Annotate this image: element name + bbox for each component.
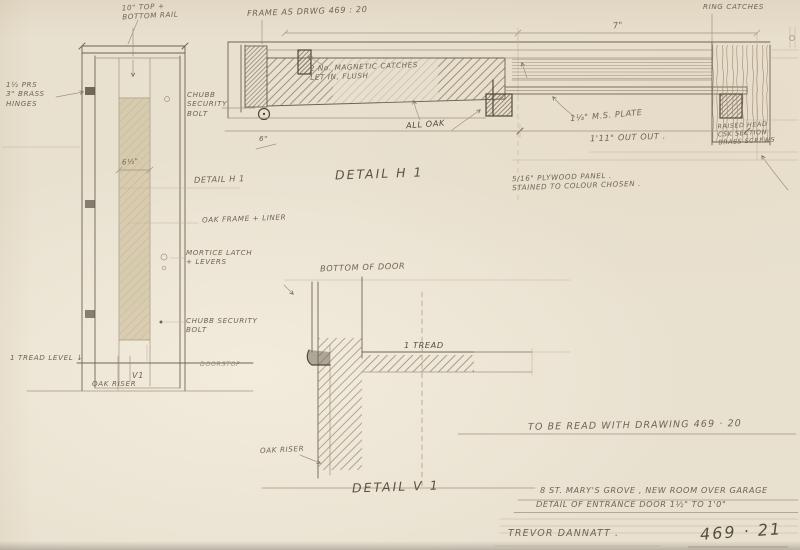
mortice-note: MORTICE LATCH + LEVERS	[186, 248, 252, 267]
detail-v1-title: DETAIL V 1	[352, 477, 440, 496]
bolt-dim: 6"	[259, 134, 268, 143]
door-elevation	[2, 20, 253, 391]
magnetic-catches-note: 2 No. MAGNETIC CATCHES LET IN, FLUSH	[310, 60, 419, 82]
detail-v1-section	[262, 277, 570, 490]
drawing-subject: DETAIL OF ENTRANCE DOOR 1½" TO 1'0"	[536, 499, 726, 510]
ring-catches-note: RING CATCHES	[703, 2, 764, 11]
oak-riser-note-elev: OAK RISER	[92, 379, 136, 388]
screws-note: RAISED HEAD CSK SECTION BRASS SCREWS	[717, 121, 775, 148]
panel-width-dim: 6½"	[122, 156, 139, 166]
paper-edge-shadow	[0, 541, 800, 550]
detail-h1-title: DETAIL H 1	[335, 164, 424, 183]
detail-h1-ref: DETAIL H 1	[194, 173, 245, 185]
chubb-bolt-note-elev: CHUBB SECURITY BOLT	[186, 316, 258, 335]
architect-name: TREVOR DANNATT .	[508, 528, 619, 540]
detail-h1-section	[222, 14, 798, 200]
tread-level-note: 1 TREAD LEVEL ↓	[10, 353, 83, 362]
hinges-note: 1½ PRS 3" BRASS HINGES	[6, 80, 45, 108]
top-rail-note: 10" TOP + BOTTOM RAIL	[122, 1, 179, 23]
chubb-bolt-note-h1: CHUBB SECURITY BOLT	[187, 90, 227, 118]
h1-width-dim: 7"	[612, 19, 624, 31]
drawing-sheet: 10" TOP + BOTTOM RAIL FRAME AS DRWG 469 …	[0, 0, 800, 550]
tread-note: 1 TREAD	[404, 340, 444, 351]
doorstop-note: DOORSTOP	[200, 361, 241, 369]
drawing-linework	[0, 0, 800, 550]
project-title: 8 ST. MARY'S GROVE , NEW ROOM OVER GARAG…	[540, 485, 768, 496]
